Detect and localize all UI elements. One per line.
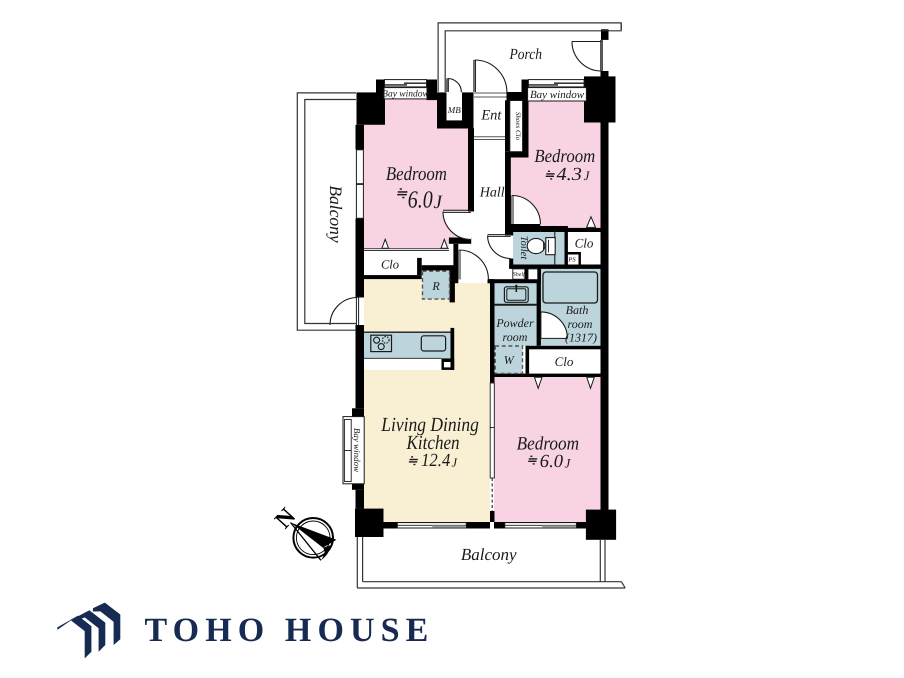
svg-text:room: room xyxy=(503,330,528,344)
svg-text:R: R xyxy=(431,279,440,293)
svg-text:6.0: 6.0 xyxy=(540,452,564,472)
svg-text:Bedroom: Bedroom xyxy=(386,164,447,185)
svg-text:Bay window: Bay window xyxy=(352,428,362,472)
svg-text:Clo: Clo xyxy=(575,236,594,251)
svg-text:TOHO HOUSE: TOHO HOUSE xyxy=(145,612,435,649)
svg-text:W: W xyxy=(504,353,515,367)
svg-text:Shelf: Shelf xyxy=(513,271,526,278)
svg-text:Balcony: Balcony xyxy=(326,185,346,243)
svg-text:MB: MB xyxy=(447,105,461,115)
svg-text:12.4: 12.4 xyxy=(421,451,450,471)
svg-text:Bay window: Bay window xyxy=(382,90,429,100)
svg-text:Clo: Clo xyxy=(555,354,574,369)
svg-text:Bath: Bath xyxy=(566,303,589,317)
svg-text:Bay window: Bay window xyxy=(530,89,585,101)
svg-text:PS: PS xyxy=(567,257,576,264)
svg-text:Clo: Clo xyxy=(381,258,399,272)
svg-text:Toilet: Toilet xyxy=(518,236,529,261)
svg-text:Ent: Ent xyxy=(480,108,502,124)
svg-text:Balcony: Balcony xyxy=(461,545,517,564)
svg-text:Hall: Hall xyxy=(479,186,505,201)
svg-text:6.0: 6.0 xyxy=(408,187,433,214)
svg-text:Powder: Powder xyxy=(495,316,534,330)
svg-text:Shoes Clo: Shoes Clo xyxy=(514,112,522,141)
svg-text:room: room xyxy=(568,317,593,331)
svg-text:4.3: 4.3 xyxy=(557,165,582,185)
svg-text:(1317): (1317) xyxy=(565,331,597,345)
svg-text:Porch: Porch xyxy=(509,46,543,63)
